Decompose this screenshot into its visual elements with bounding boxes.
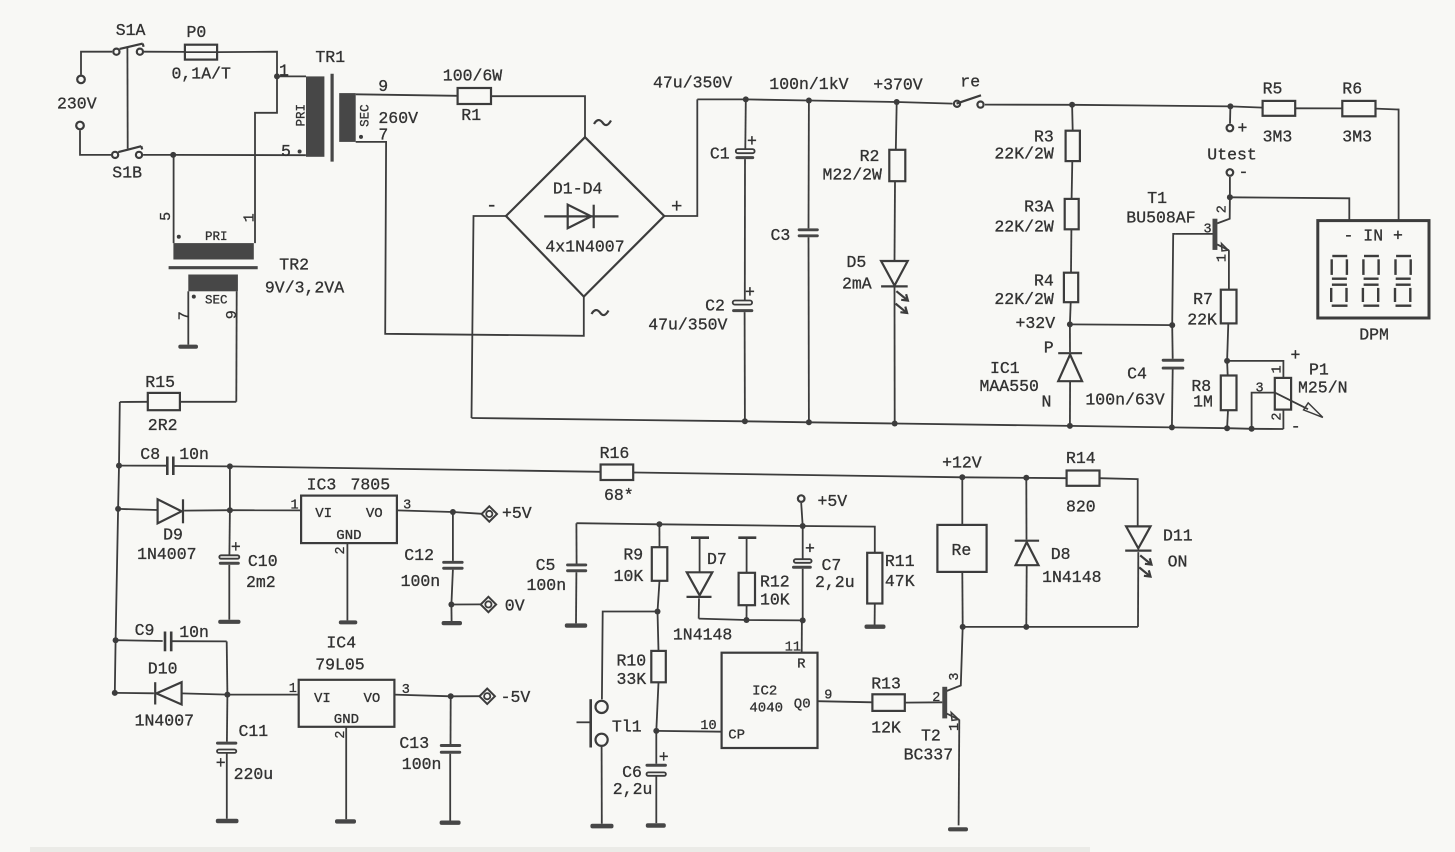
svg-text:T2: T2 — [921, 727, 941, 746]
svg-text:10: 10 — [700, 719, 716, 734]
svg-text:D8: D8 — [1051, 545, 1071, 564]
svg-text:3M3: 3M3 — [1263, 128, 1293, 147]
svg-text:TR2: TR2 — [279, 256, 309, 275]
svg-text:100n: 100n — [402, 755, 442, 774]
svg-text:7: 7 — [176, 311, 193, 320]
svg-text:IC2: IC2 — [752, 684, 777, 700]
svg-text:+12V: +12V — [942, 454, 982, 473]
svg-text:D11: D11 — [1163, 527, 1193, 546]
svg-text:D10: D10 — [148, 660, 178, 679]
svg-text:100n/63V: 100n/63V — [1085, 391, 1164, 410]
svg-text:10K: 10K — [760, 591, 790, 610]
svg-text:1N4007: 1N4007 — [135, 712, 194, 731]
svg-text:R13: R13 — [871, 675, 901, 694]
svg-text:R9: R9 — [623, 546, 643, 565]
svg-text:+32V: +32V — [1016, 314, 1056, 333]
svg-text:1N4148: 1N4148 — [1042, 568, 1101, 587]
svg-text:+: + — [745, 283, 755, 302]
svg-text:3: 3 — [948, 673, 963, 681]
svg-text:4040: 4040 — [749, 701, 783, 717]
svg-text:+: + — [805, 540, 815, 559]
svg-text:1N4148: 1N4148 — [673, 626, 732, 645]
svg-text:1M: 1M — [1193, 393, 1213, 412]
svg-text:79L05: 79L05 — [315, 656, 365, 675]
svg-text:re: re — [960, 73, 980, 92]
svg-text:1: 1 — [291, 499, 299, 514]
svg-text:IC3: IC3 — [307, 476, 337, 495]
svg-text:1: 1 — [242, 213, 259, 222]
svg-text:10K: 10K — [614, 567, 644, 586]
svg-text:-: - — [486, 195, 497, 217]
svg-text:VI: VI — [314, 691, 331, 707]
svg-text:1: 1 — [279, 62, 289, 81]
svg-text:4x1N4007: 4x1N4007 — [545, 238, 624, 257]
svg-text:R3A: R3A — [1024, 198, 1054, 217]
svg-text:+5V: +5V — [502, 504, 532, 523]
svg-text:2R2: 2R2 — [148, 416, 178, 435]
svg-text:2,2u: 2,2u — [613, 780, 653, 799]
svg-text:D5: D5 — [847, 253, 867, 272]
svg-text:10n: 10n — [179, 623, 209, 642]
svg-text:R2: R2 — [860, 147, 880, 166]
svg-text:R6: R6 — [1342, 80, 1362, 99]
svg-text:TR1: TR1 — [315, 48, 345, 67]
svg-text:10n: 10n — [179, 445, 209, 464]
svg-text:R11: R11 — [885, 552, 915, 571]
svg-text:IC4: IC4 — [326, 634, 356, 653]
svg-text:9: 9 — [824, 689, 832, 704]
svg-text:820: 820 — [1066, 498, 1096, 517]
svg-text:-: - — [1291, 418, 1301, 437]
svg-text:22K/2W: 22K/2W — [994, 145, 1054, 164]
svg-text:2: 2 — [932, 691, 940, 706]
svg-text:1: 1 — [289, 682, 297, 697]
svg-text:100n: 100n — [527, 576, 567, 595]
svg-text:VO: VO — [364, 691, 381, 707]
svg-text:+370V: +370V — [873, 76, 923, 95]
svg-text:Tl1: Tl1 — [612, 718, 642, 737]
svg-text:D1-D4: D1-D4 — [553, 180, 603, 199]
svg-text:+: + — [1291, 346, 1301, 365]
svg-text:CP: CP — [728, 728, 745, 744]
svg-text:M22/2W: M22/2W — [823, 166, 883, 185]
svg-text:+: + — [231, 538, 241, 557]
svg-text:BC337: BC337 — [904, 746, 954, 765]
svg-text:C12: C12 — [404, 546, 434, 565]
svg-text:9: 9 — [378, 77, 388, 96]
svg-text:47K: 47K — [885, 572, 915, 591]
svg-text:5: 5 — [281, 142, 291, 161]
svg-text:R1: R1 — [461, 106, 481, 125]
svg-text:+: + — [659, 748, 669, 767]
svg-text:R4: R4 — [1034, 272, 1054, 291]
svg-text:C2: C2 — [705, 297, 725, 316]
svg-text:22K: 22K — [1187, 311, 1217, 330]
svg-text:GND: GND — [334, 712, 359, 728]
svg-text:P0: P0 — [187, 23, 207, 42]
svg-text:PRI: PRI — [295, 104, 309, 127]
svg-text:230V: 230V — [57, 95, 97, 114]
svg-text:R15: R15 — [145, 373, 175, 392]
svg-text:22K/2W: 22K/2W — [994, 218, 1054, 237]
svg-text:0,1A/T: 0,1A/T — [172, 65, 232, 84]
svg-text:3: 3 — [402, 683, 410, 698]
svg-text:1: 1 — [1216, 254, 1231, 262]
svg-text:C9: C9 — [135, 621, 155, 640]
svg-text:100/6W: 100/6W — [443, 67, 503, 86]
svg-text:+: + — [1238, 119, 1248, 138]
svg-text:C1: C1 — [710, 145, 730, 164]
svg-text:R14: R14 — [1066, 449, 1096, 468]
svg-text:C13: C13 — [399, 734, 429, 753]
svg-text:2m2: 2m2 — [246, 573, 276, 592]
svg-text:3: 3 — [1256, 382, 1264, 397]
svg-text:SEC: SEC — [205, 294, 228, 308]
svg-text:C8: C8 — [140, 445, 160, 464]
svg-text:Re: Re — [952, 541, 972, 560]
svg-text:ON: ON — [1168, 553, 1188, 572]
svg-text:+: + — [671, 196, 682, 218]
svg-text:R16: R16 — [600, 444, 630, 463]
svg-text:Utest: Utest — [1207, 146, 1257, 165]
svg-text:R12: R12 — [760, 573, 790, 592]
svg-text:Q0: Q0 — [794, 697, 811, 713]
svg-text:T1: T1 — [1147, 189, 1167, 208]
svg-text:0V: 0V — [505, 597, 525, 616]
svg-text:2,2u: 2,2u — [815, 573, 855, 592]
svg-text:N: N — [1042, 393, 1052, 412]
svg-text:1N4007: 1N4007 — [137, 545, 196, 564]
svg-text:C4: C4 — [1127, 365, 1147, 384]
svg-text:3M3: 3M3 — [1342, 128, 1372, 147]
svg-text:1: 1 — [1271, 365, 1286, 373]
svg-text:-5V: -5V — [501, 688, 531, 707]
svg-text:7805: 7805 — [351, 476, 391, 495]
svg-text:SEC: SEC — [359, 104, 373, 127]
svg-text:-: - — [1239, 163, 1249, 182]
svg-text:+5V: +5V — [818, 492, 848, 511]
svg-text:+: + — [216, 754, 226, 773]
svg-text:PRI: PRI — [205, 230, 228, 244]
svg-text:S1B: S1B — [112, 164, 142, 183]
svg-text:3: 3 — [1204, 223, 1212, 238]
svg-text:12K: 12K — [871, 719, 901, 738]
svg-text:BU508AF: BU508AF — [1126, 209, 1195, 228]
svg-text:1: 1 — [948, 723, 963, 731]
svg-text:C3: C3 — [771, 226, 791, 245]
svg-text:M25/N: M25/N — [1298, 379, 1348, 398]
svg-text:VO: VO — [366, 506, 383, 522]
svg-text:100n: 100n — [401, 572, 441, 591]
svg-text:C5: C5 — [536, 556, 556, 575]
svg-text:2mA: 2mA — [842, 275, 872, 294]
svg-text:D9: D9 — [163, 526, 183, 545]
svg-text:9: 9 — [224, 310, 241, 319]
svg-text:68*: 68* — [604, 486, 634, 505]
svg-text:5: 5 — [158, 212, 175, 221]
svg-text:R7: R7 — [1193, 290, 1213, 309]
svg-text:S1A: S1A — [116, 21, 146, 40]
svg-text:2: 2 — [1216, 205, 1231, 213]
svg-text:C11: C11 — [239, 722, 269, 741]
svg-text:DPM: DPM — [1359, 326, 1389, 345]
svg-text:P1: P1 — [1309, 361, 1329, 380]
svg-text:P: P — [1044, 339, 1054, 358]
svg-text:D7: D7 — [707, 550, 727, 569]
svg-text:47u/350V: 47u/350V — [648, 316, 727, 335]
svg-text:C10: C10 — [248, 552, 278, 571]
svg-text:GND: GND — [336, 528, 361, 544]
svg-text:220u: 220u — [234, 765, 274, 784]
svg-text:3: 3 — [403, 499, 411, 514]
svg-text:100n/1kV: 100n/1kV — [769, 75, 848, 94]
svg-text:11: 11 — [785, 641, 801, 656]
svg-text:R5: R5 — [1263, 80, 1283, 99]
svg-text:R: R — [797, 657, 806, 673]
svg-text:33K: 33K — [617, 670, 647, 689]
svg-text:MAA550: MAA550 — [980, 377, 1039, 396]
svg-text:+: + — [747, 132, 757, 151]
svg-text:IC1: IC1 — [990, 359, 1020, 378]
svg-text:R10: R10 — [617, 652, 647, 671]
svg-text:9V/3,2VA: 9V/3,2VA — [265, 279, 344, 298]
svg-text:VI: VI — [315, 506, 332, 522]
svg-text:22K/2W: 22K/2W — [994, 290, 1054, 309]
svg-text:- IN +: - IN + — [1344, 227, 1403, 246]
svg-text:47u/350V: 47u/350V — [653, 74, 732, 93]
